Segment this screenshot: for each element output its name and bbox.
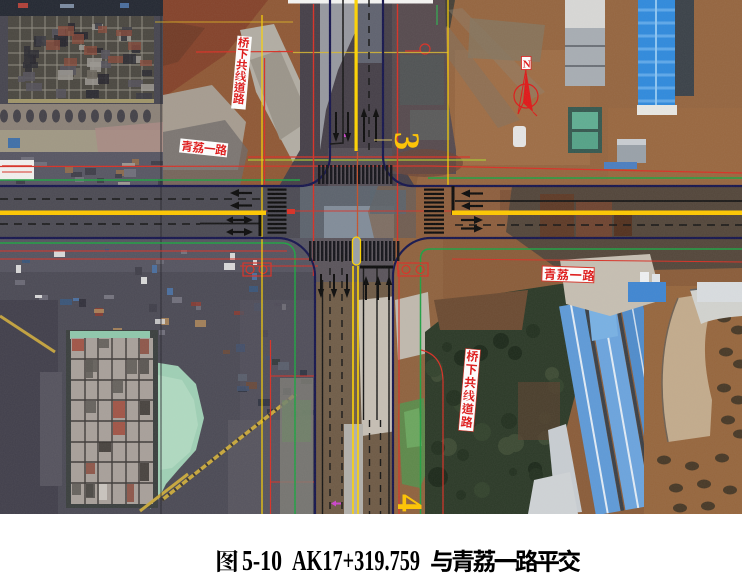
svg-text:5-10: 5-10: [242, 546, 282, 577]
svg-text:AK17+319.759: AK17+319.759: [292, 546, 420, 577]
